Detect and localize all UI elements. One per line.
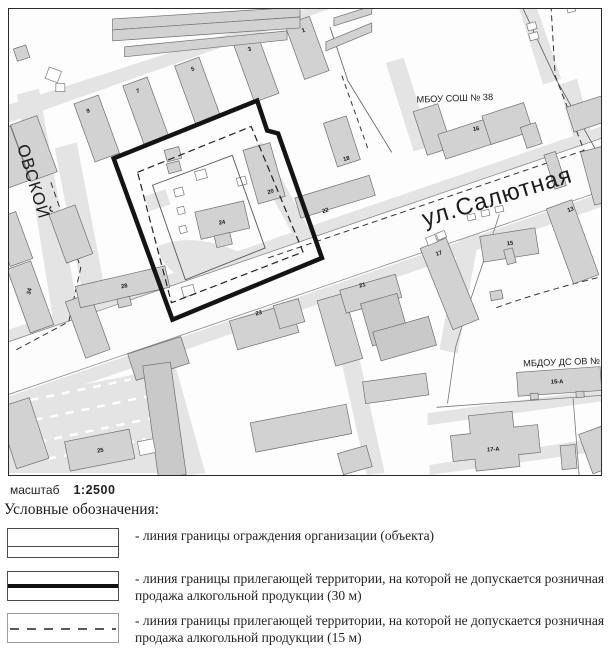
thick-line-symbol <box>8 584 118 588</box>
scale-value: 1:2500 <box>73 483 115 497</box>
scale-label: масштаб <box>10 483 59 497</box>
legend-swatch-15m-line <box>7 613 119 643</box>
map-scale: масштаб1:2500 <box>10 483 115 497</box>
place-label: МБДОУ ДС ОВ № <box>523 356 600 369</box>
legend-item-30m: - линия границы прилегающей территории, … <box>135 570 611 605</box>
page: { "colors":{ "building_fill":"#d2d2d2", … <box>0 0 611 652</box>
legend-title: Условные обозначения: <box>4 501 159 519</box>
legend-item-15m: - линия границы прилегающей территории, … <box>135 612 611 647</box>
building-number-label: 17-А <box>487 447 501 454</box>
legend-swatch-30m-line <box>7 571 119 601</box>
thin-line-symbol <box>8 546 118 547</box>
place-label: МБОУ СОШ № 38 <box>416 92 493 105</box>
map-frame: ул.СалютнаяОВСКОЙ МБОУ СОШ № 38МБДОУ ДС … <box>8 8 602 476</box>
city-map: ул.СалютнаяОВСКОЙ МБОУ СОШ № 38МБДОУ ДС … <box>9 9 601 475</box>
legend-item-fence: - линия границы ограждения организации (… <box>135 527 611 544</box>
kindergarten-15m-dashed-line <box>496 277 601 308</box>
building-number-label: 16 <box>473 126 480 133</box>
building-number-label: 15-А <box>551 379 565 385</box>
dashed-line-symbol <box>10 628 116 630</box>
legend-swatch-fence-line <box>7 528 119 558</box>
